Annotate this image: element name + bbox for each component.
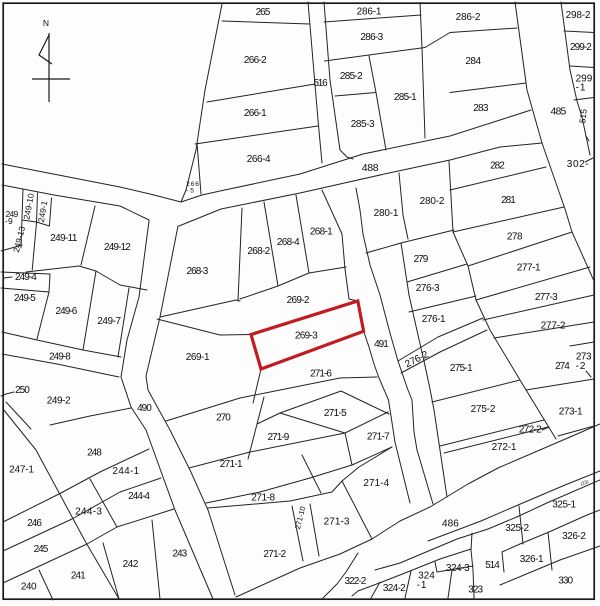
svg-text:271-2: 271-2 (263, 549, 286, 560)
svg-text:286-3: 286-3 (360, 32, 383, 43)
svg-text:271-3: 271-3 (324, 517, 350, 528)
svg-text:298-2: 298-2 (566, 10, 591, 21)
svg-text:N: N (43, 18, 49, 28)
svg-text:272-1: 272-1 (492, 442, 517, 453)
svg-text:269-2: 269-2 (287, 295, 310, 306)
svg-text:490: 490 (137, 403, 152, 414)
svg-text:269-1: 269-1 (186, 352, 210, 363)
svg-text:265: 265 (256, 7, 271, 18)
svg-text:250: 250 (15, 385, 30, 396)
svg-text:268-3: 268-3 (187, 266, 209, 277)
svg-text:271-6: 271-6 (310, 369, 332, 380)
svg-text:-2: -2 (576, 361, 587, 372)
svg-text:270: 270 (216, 413, 231, 424)
svg-text:266-4: 266-4 (247, 154, 271, 165)
svg-text:286-1: 286-1 (357, 7, 382, 18)
svg-text:491: 491 (374, 339, 389, 350)
svg-text:323: 323 (468, 584, 483, 595)
svg-text:272-2: 272-2 (519, 425, 542, 436)
svg-text:-1: -1 (417, 580, 428, 591)
svg-text:268-2: 268-2 (247, 246, 270, 257)
svg-text:275-1: 275-1 (450, 363, 473, 374)
svg-text:247-1: 247-1 (9, 464, 34, 475)
svg-text:-5: -5 (186, 188, 196, 195)
svg-text:243: 243 (172, 549, 187, 560)
svg-text:241: 241 (71, 570, 86, 581)
svg-text:322-2: 322-2 (345, 576, 367, 587)
svg-text:271-8: 271-8 (251, 493, 275, 504)
svg-text:280-1: 280-1 (374, 208, 399, 219)
svg-text:488: 488 (362, 162, 379, 174)
svg-text:271-7: 271-7 (367, 431, 390, 442)
svg-text:284: 284 (465, 56, 481, 67)
svg-text:271-9: 271-9 (268, 432, 290, 443)
svg-text:244-3: 244-3 (75, 507, 102, 518)
svg-text:240: 240 (21, 581, 37, 592)
svg-text:266-2: 266-2 (244, 55, 267, 66)
svg-text:268-1: 268-1 (310, 227, 333, 238)
svg-text:266-1: 266-1 (244, 108, 267, 119)
svg-text:278: 278 (507, 232, 523, 243)
svg-text:330: 330 (558, 576, 573, 587)
svg-text:281: 281 (501, 195, 516, 206)
svg-text:485: 485 (551, 106, 567, 118)
svg-text:302-: 302- (567, 159, 589, 170)
svg-text:249-7: 249-7 (97, 316, 121, 327)
svg-text:486: 486 (442, 518, 459, 529)
svg-text:277-3: 277-3 (535, 292, 558, 303)
svg-text:280-2: 280-2 (420, 196, 445, 207)
svg-text:326-2: 326-2 (562, 531, 586, 542)
svg-text:285-1: 285-1 (394, 92, 417, 103)
svg-text:246: 246 (27, 518, 42, 529)
svg-text:-9: -9 (5, 216, 13, 226)
svg-text:285-2: 285-2 (340, 71, 363, 82)
svg-text:279: 279 (414, 254, 429, 265)
svg-text:242: 242 (123, 559, 139, 570)
svg-text:324-3: 324-3 (446, 563, 470, 574)
svg-text:273-1: 273-1 (559, 407, 583, 418)
svg-text:286-2: 286-2 (456, 12, 481, 23)
svg-text:249-11: 249-11 (50, 233, 78, 244)
svg-text:282: 282 (490, 161, 505, 172)
svg-text:249-2: 249-2 (47, 396, 71, 407)
svg-text:515: 515 (577, 108, 589, 124)
svg-text:325-2: 325-2 (505, 523, 529, 534)
svg-text:249-4: 249-4 (15, 272, 37, 283)
svg-text:299-2: 299-2 (570, 42, 592, 53)
svg-text:271-1: 271-1 (220, 459, 243, 470)
svg-text:283: 283 (473, 103, 489, 114)
svg-text:325-1: 325-1 (552, 500, 576, 511)
svg-text:276-3: 276-3 (416, 283, 440, 294)
svg-text:326-1: 326-1 (520, 554, 544, 565)
svg-text:249-12: 249-12 (104, 242, 131, 253)
svg-text:514: 514 (485, 560, 500, 571)
svg-text:269-3: 269-3 (295, 331, 318, 342)
svg-text:285-3: 285-3 (351, 119, 375, 130)
svg-text:324-2: 324-2 (383, 583, 406, 594)
svg-text:-1: -1 (576, 83, 587, 94)
svg-text:277-1: 277-1 (517, 263, 541, 274)
svg-text:276-1: 276-1 (422, 314, 446, 325)
svg-text:274: 274 (555, 361, 570, 372)
svg-text:244-4: 244-4 (128, 491, 150, 502)
svg-text:271-4: 271-4 (363, 478, 389, 489)
svg-text:277-2: 277-2 (541, 321, 566, 332)
svg-text:249-8: 249-8 (49, 352, 71, 363)
svg-text:275-2: 275-2 (471, 404, 496, 415)
svg-text:245: 245 (34, 544, 49, 555)
svg-text:249-6: 249-6 (56, 306, 78, 317)
svg-text:268-4: 268-4 (277, 237, 300, 248)
svg-text:244-1: 244-1 (112, 466, 139, 477)
svg-text:249-5: 249-5 (14, 293, 36, 304)
svg-text:248: 248 (87, 448, 102, 459)
svg-text:271-5: 271-5 (324, 408, 347, 419)
svg-text:516: 516 (313, 78, 328, 89)
